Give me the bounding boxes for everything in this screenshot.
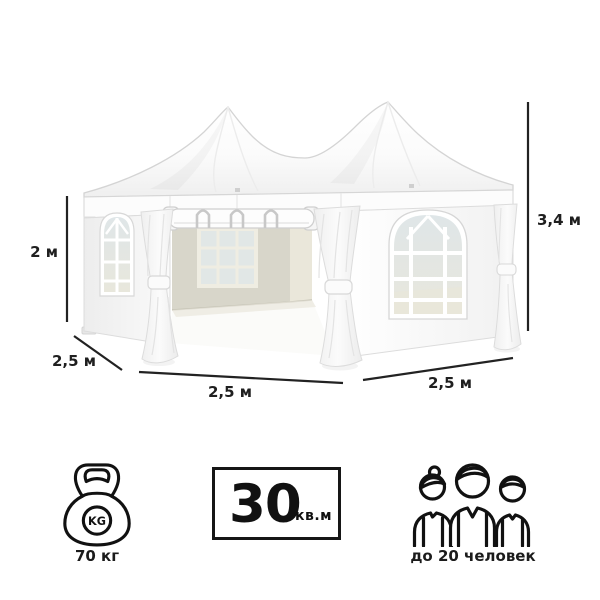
tent-interior bbox=[163, 207, 335, 356]
people-icon bbox=[406, 461, 539, 547]
interior-window bbox=[199, 229, 256, 286]
tent-right-wall bbox=[341, 205, 513, 358]
kettlebell-kg-text: KG bbox=[88, 515, 106, 528]
dimension-label-side-depth: 2,5 м bbox=[44, 352, 104, 370]
area-unit: кв.м bbox=[295, 508, 332, 524]
dimension-line-front-width bbox=[139, 372, 343, 383]
product-infographic: 2 м 3,4 м 2,5 м 2,5 м 2,5 м KG 70 кг 30 … bbox=[0, 0, 600, 600]
dimension-label-front-width: 2,5 м bbox=[200, 383, 260, 401]
rolled-door bbox=[163, 207, 319, 230]
weight-label: 70 кг bbox=[52, 547, 142, 565]
dimension-label-total-height: 3,4 м bbox=[537, 211, 597, 229]
dimension-label-wall-height: 2 м bbox=[14, 243, 58, 261]
capacity-label: до 20 человек bbox=[393, 547, 553, 565]
tent-roof bbox=[84, 102, 513, 218]
area-box: 30 кв.м bbox=[212, 467, 341, 540]
area-value: 30 bbox=[229, 478, 301, 531]
dimension-label-right-width: 2,5 м bbox=[420, 374, 480, 392]
kettlebell-icon: KG bbox=[58, 459, 136, 547]
